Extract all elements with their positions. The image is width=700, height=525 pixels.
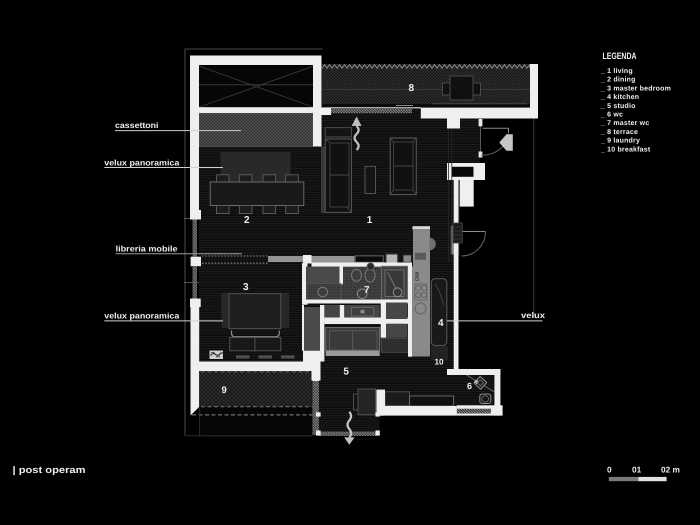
svg-text:02 m: 02 m (661, 465, 680, 475)
svg-text:_ 6 wc: _ 6 wc (600, 112, 623, 119)
svg-text:velux panoramica: velux panoramica (104, 311, 179, 320)
svg-text:5: 5 (343, 367, 349, 378)
svg-text:1: 1 (367, 215, 373, 226)
svg-text:6: 6 (467, 381, 472, 391)
svg-text:libreria mobile: libreria mobile (116, 244, 178, 253)
svg-text:4: 4 (438, 318, 444, 329)
svg-text:_ 3 master bedroom: _ 3 master bedroom (600, 84, 671, 92)
svg-text:LEGENDA: LEGENDA (603, 51, 637, 61)
svg-text:cassettoni: cassettoni (115, 121, 159, 130)
svg-text:2: 2 (244, 215, 250, 226)
svg-text:01: 01 (632, 465, 642, 475)
svg-text:_ 8 terrace: _ 8 terrace (600, 129, 638, 136)
svg-text:0: 0 (607, 465, 612, 475)
svg-text:_ 10 breakfast: _ 10 breakfast (600, 145, 651, 153)
svg-text:10: 10 (435, 358, 445, 367)
svg-text:_ 7 master wc: _ 7 master wc (600, 120, 650, 127)
svg-text:_ 1 living: _ 1 living (600, 67, 633, 75)
svg-text:7: 7 (364, 285, 370, 296)
svg-text:9: 9 (222, 385, 227, 396)
svg-text:3: 3 (243, 282, 249, 293)
svg-text:velux panoramica: velux panoramica (104, 158, 179, 167)
svg-text:| post operam: | post operam (13, 465, 86, 476)
svg-text:_ 9 laundry: _ 9 laundry (600, 137, 640, 145)
svg-text:DW: DW (415, 271, 421, 281)
svg-text:_ 4 kitchen: _ 4 kitchen (600, 93, 639, 101)
svg-text:velux: velux (521, 311, 546, 320)
svg-text:8: 8 (409, 83, 415, 94)
svg-text:_ 2 dining: _ 2 dining (600, 76, 636, 84)
svg-text:_ 5 studio: _ 5 studio (600, 102, 636, 110)
